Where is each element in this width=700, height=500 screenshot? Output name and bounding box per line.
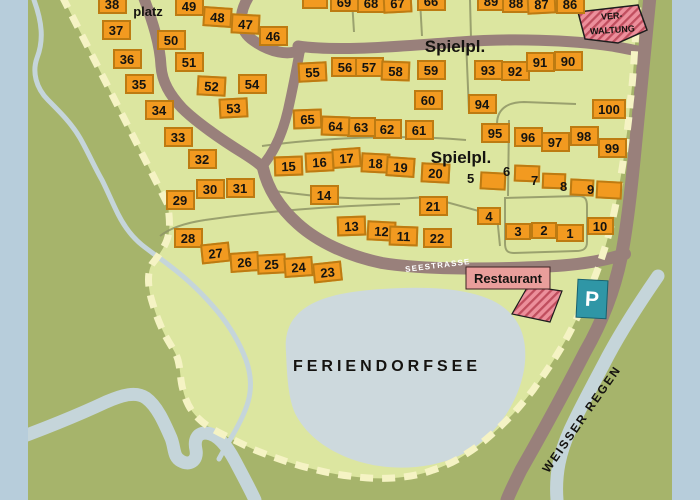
plot-box-28: 28 xyxy=(174,228,203,248)
restaurant-label: Restaurant xyxy=(474,272,542,285)
frame-left xyxy=(0,0,28,500)
plot-box-4: 4 xyxy=(477,207,501,225)
plot-box-30: 30 xyxy=(196,179,225,199)
plot-box-65: 65 xyxy=(292,109,322,130)
plot-number-9: 9 xyxy=(587,183,594,196)
plot-box-93: 93 xyxy=(474,60,503,80)
plot-box-19: 19 xyxy=(385,156,415,178)
plot-box-34: 34 xyxy=(145,100,174,120)
plot-box-61: 61 xyxy=(405,120,434,140)
plot-number-7: 7 xyxy=(531,174,538,187)
frame-right xyxy=(672,0,700,500)
plot-box-98: 98 xyxy=(570,126,599,146)
plot-box-46: 46 xyxy=(259,26,288,46)
parking-label: P xyxy=(584,288,599,310)
plot-box-57: 57 xyxy=(355,57,384,77)
plot-box-15: 15 xyxy=(273,156,303,177)
plot-box-100: 100 xyxy=(592,99,626,119)
plot-box-13: 13 xyxy=(336,216,366,237)
plot-box-54: 54 xyxy=(238,74,267,94)
plot-box-97: 97 xyxy=(541,132,570,152)
verwaltung-label-line1: VER- xyxy=(601,11,623,21)
plot-box-48: 48 xyxy=(202,6,232,28)
plot-box-49: 49 xyxy=(175,0,204,16)
plot-box-50: 50 xyxy=(157,30,186,50)
plot-box-31: 31 xyxy=(226,178,255,198)
plot-box-66: 66 xyxy=(417,0,446,11)
plot-box-67: 67 xyxy=(382,0,412,14)
plot-box-38: 38 xyxy=(98,0,127,14)
plot-box-1: 1 xyxy=(556,224,584,242)
plot-box-90: 90 xyxy=(554,51,583,71)
plot-box-32: 32 xyxy=(188,149,217,169)
plot-box-55: 55 xyxy=(297,61,327,82)
plot-box-21: 21 xyxy=(419,196,448,216)
plot-box-26: 26 xyxy=(229,251,259,273)
plot-box-86: 86 xyxy=(556,0,585,14)
plot-box-69: 69 xyxy=(330,0,359,12)
playground-label-mid: Spielpl. xyxy=(431,149,491,166)
plot-box-29: 29 xyxy=(166,190,195,210)
plot-box-52: 52 xyxy=(196,75,226,96)
plot-box-87: 87 xyxy=(526,0,556,15)
plot-box-33: 33 xyxy=(164,127,193,147)
plot-box-17: 17 xyxy=(331,147,361,169)
plot-box-99: 99 xyxy=(598,138,627,158)
plot-box-62: 62 xyxy=(373,119,402,139)
plot-box-23: 23 xyxy=(312,261,343,284)
spielplatz-label-partial: platz xyxy=(133,5,163,18)
plot-box-58: 58 xyxy=(380,61,410,82)
plot-box-37: 37 xyxy=(102,20,131,40)
plot-box-94: 94 xyxy=(468,94,497,114)
plot-box-53: 53 xyxy=(218,97,248,118)
plot-box-10: 10 xyxy=(587,217,614,235)
plot-box-36: 36 xyxy=(113,49,142,69)
plot-box-91: 91 xyxy=(526,52,555,72)
plot-number-6: 6 xyxy=(503,165,510,178)
plot-box-95: 95 xyxy=(481,123,510,143)
plot-box-96: 96 xyxy=(514,127,543,147)
lake-label: FERIENDORFSEE xyxy=(293,359,481,375)
plot-box-25: 25 xyxy=(256,253,286,274)
plot-box-60: 60 xyxy=(414,90,443,110)
plot-box-3: 3 xyxy=(505,223,531,240)
plot-box-35: 35 xyxy=(125,74,154,94)
plot-box-59: 59 xyxy=(417,60,446,80)
plot-box-24: 24 xyxy=(283,256,313,278)
holiday-village-map: 3837363534333230312928272625242349484746… xyxy=(0,0,700,500)
plot-box-16: 16 xyxy=(304,151,334,172)
plot-box-64: 64 xyxy=(320,116,350,137)
plot-box-51: 51 xyxy=(175,52,204,72)
plot-box-11: 11 xyxy=(388,226,418,247)
plot-box-47: 47 xyxy=(230,13,260,34)
plot-box-27: 27 xyxy=(200,242,231,265)
plot-box-14: 14 xyxy=(310,185,339,205)
plot-box-63: 63 xyxy=(347,117,376,137)
plot-box-22: 22 xyxy=(423,228,452,248)
plot-box-2: 2 xyxy=(531,222,557,239)
plot-number-5: 5 xyxy=(467,172,474,185)
playground-label-top: Spielpl. xyxy=(425,38,485,55)
plot-box-fragment xyxy=(302,0,328,9)
plot-box-fragment xyxy=(596,180,623,199)
plot-number-8: 8 xyxy=(560,180,567,193)
plot-box-68: 68 xyxy=(357,0,386,13)
